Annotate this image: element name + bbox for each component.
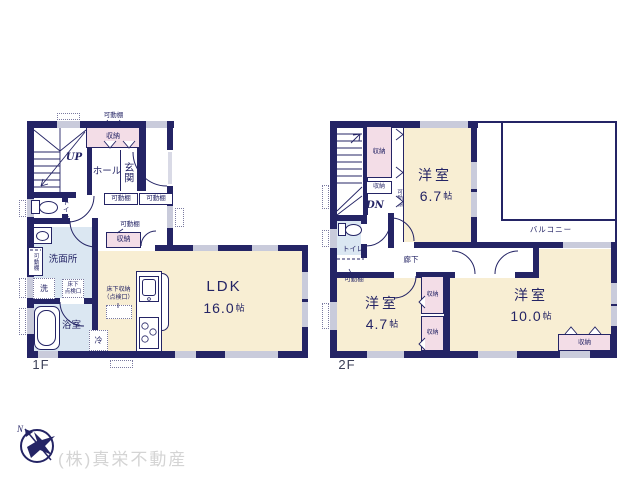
movable-shelf-box: 可動棚 xyxy=(104,193,138,205)
stairs-up-label: UP xyxy=(64,151,84,164)
laundry-spot: 洗 xyxy=(33,278,55,299)
window xyxy=(471,162,477,189)
window xyxy=(471,192,477,217)
window xyxy=(611,283,617,304)
stairs-2f xyxy=(337,134,362,215)
west-room-100-label: 洋室 xyxy=(507,287,555,304)
toilet-bowl xyxy=(39,201,58,214)
underfloor-storage-label: 床下収納（点検口） xyxy=(99,286,138,303)
room-west-47 xyxy=(336,278,421,351)
company-name: (株)真栄不動産 xyxy=(58,449,238,471)
wall-segment xyxy=(444,272,450,358)
kitchen-sink-basin xyxy=(142,279,156,296)
front-door-leaf xyxy=(168,152,172,184)
shutter-marker xyxy=(175,208,184,227)
window xyxy=(302,272,308,299)
shutter-marker xyxy=(110,360,133,368)
washbasin-bowl xyxy=(36,231,49,241)
floor-plan-page: 収納 可動棚 可動棚 収納 可動棚 洗 床下点検口 冷 可動棚 UP ホール 玄… xyxy=(0,0,640,480)
ldk-label: LDK xyxy=(194,278,254,296)
wall-segment xyxy=(388,213,394,248)
wall-segment xyxy=(361,215,367,224)
storage-box: 収納 xyxy=(421,316,444,351)
floor1-tag: 1F xyxy=(30,359,52,372)
storage-label: 収納 xyxy=(106,133,120,141)
window xyxy=(252,245,278,251)
bathtub-inner xyxy=(37,310,56,346)
window xyxy=(560,351,590,358)
storage-label: 収納 xyxy=(373,184,385,191)
storage-label: 収納 xyxy=(117,236,131,244)
compass-icon: N xyxy=(16,424,55,462)
window xyxy=(478,351,517,358)
compass-north-label: N xyxy=(16,424,24,434)
west-room-47-label: 洋室 xyxy=(358,295,406,312)
window xyxy=(57,121,80,128)
storage-box: 収納 xyxy=(558,334,611,351)
shutter-marker xyxy=(19,308,26,335)
balcony-label: バルコニー xyxy=(516,224,586,236)
balcony-railing xyxy=(615,121,617,248)
storage-box: 収納 xyxy=(366,181,392,194)
window xyxy=(175,351,196,358)
storage-box: 収納 xyxy=(86,127,140,148)
shutter-marker xyxy=(57,113,80,120)
window xyxy=(563,242,611,248)
wall-segment xyxy=(155,245,308,251)
shutter-marker xyxy=(322,303,329,329)
balcony-railing xyxy=(501,121,503,221)
shutter-marker xyxy=(19,278,26,298)
wall-segment xyxy=(84,298,98,304)
room-west-67 xyxy=(404,128,471,242)
fridge-spot: 冷 xyxy=(89,330,108,351)
room-west-100-upper xyxy=(539,249,611,278)
movable-shelf-label: 可動棚 xyxy=(32,253,38,271)
window xyxy=(225,351,278,358)
window xyxy=(367,351,404,358)
toilet-bowl xyxy=(345,224,362,236)
floor2-tag: 2F xyxy=(336,359,358,372)
laundry-label: 洗 xyxy=(40,284,48,293)
movable-shelf-label: 可動棚 xyxy=(340,275,368,284)
movable-shelf-box: 可動棚 xyxy=(28,247,43,276)
underfloor-storage-hatch xyxy=(106,305,132,319)
window xyxy=(167,206,173,228)
window xyxy=(302,302,308,327)
movable-shelf-label: 可動棚 xyxy=(393,180,405,216)
storage-box: 収納 xyxy=(106,232,141,248)
storage-label: 収納 xyxy=(373,148,386,155)
movable-shelf-label: 可動棚 xyxy=(116,220,144,229)
entrance-label: 玄関 xyxy=(119,153,135,191)
storage-label: 収納 xyxy=(578,339,591,346)
window xyxy=(27,308,34,334)
west-room-100-size: 10.0帖 xyxy=(503,308,559,324)
movable-shelf-label: 可動棚 xyxy=(146,195,166,202)
window xyxy=(420,121,468,128)
bathroom-label: 浴室 xyxy=(59,320,84,332)
storage-box: 収納 xyxy=(366,126,392,178)
stairs-down-label: DN xyxy=(365,199,385,212)
storage-label: 収納 xyxy=(426,330,438,337)
wall-segment xyxy=(533,248,539,278)
storage-box: 収納 xyxy=(421,276,444,314)
window xyxy=(146,121,167,128)
fridge-label: 冷 xyxy=(95,336,103,345)
movable-shelf-label: 可動棚 xyxy=(100,111,127,120)
kitchen-stove xyxy=(139,317,159,349)
underfloor-hatch-label: 床下点検口 xyxy=(65,282,82,295)
shutter-marker xyxy=(322,230,329,247)
movable-shelf-box: 可動棚 xyxy=(139,193,173,205)
west-room-67-size: 6.7帖 xyxy=(408,188,464,204)
storage-label: 収納 xyxy=(426,292,438,299)
west-room-67-label: 洋室 xyxy=(411,167,459,184)
ldk-size-label: 16.0帖 xyxy=(194,300,254,316)
movable-shelf-label: 可動棚 xyxy=(111,195,131,202)
shutter-marker xyxy=(322,185,329,209)
toilet-label: トイレ xyxy=(58,196,71,222)
balcony-railing xyxy=(501,219,617,221)
window xyxy=(193,245,218,251)
window xyxy=(330,229,337,248)
washroom-label: 洗面所 xyxy=(46,254,80,266)
toilet-label: トイレ xyxy=(341,245,365,255)
balcony-railing xyxy=(477,121,617,123)
underfloor-hatch: 床下点検口 xyxy=(62,279,84,298)
west-room-47-size: 4.7帖 xyxy=(356,316,408,332)
corridor-label: 廊下 xyxy=(400,255,422,265)
window xyxy=(611,306,617,326)
shutter-marker xyxy=(19,200,26,217)
window xyxy=(330,302,337,330)
